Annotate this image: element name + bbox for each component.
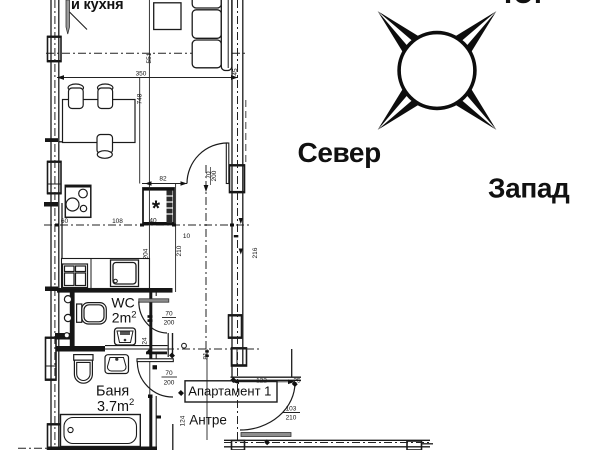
svg-text:Юг: Юг <box>504 0 546 10</box>
svg-text:Запад: Запад <box>488 173 570 204</box>
svg-text:204: 204 <box>143 248 150 259</box>
svg-text:70: 70 <box>165 311 173 318</box>
svg-text:Апартамент 1: Апартамент 1 <box>188 383 271 398</box>
svg-text:60: 60 <box>61 218 69 225</box>
svg-text:70: 70 <box>165 370 173 377</box>
svg-text:2m2: 2m2 <box>112 309 137 325</box>
svg-text:200: 200 <box>211 170 218 181</box>
svg-text:81: 81 <box>203 352 210 360</box>
svg-text:и кухня: и кухня <box>71 0 123 13</box>
svg-text:25: 25 <box>293 378 301 385</box>
svg-text:103: 103 <box>286 406 297 413</box>
svg-text:3.7m2: 3.7m2 <box>97 397 134 415</box>
svg-text:748: 748 <box>137 93 144 104</box>
svg-text:551: 551 <box>146 52 153 63</box>
svg-text:210: 210 <box>176 245 183 256</box>
svg-text:210: 210 <box>286 415 297 422</box>
svg-text:200: 200 <box>164 380 175 387</box>
svg-text:200: 200 <box>164 320 175 327</box>
svg-text:124: 124 <box>180 415 187 426</box>
svg-text:40: 40 <box>149 218 157 225</box>
svg-text:82: 82 <box>159 176 167 183</box>
svg-text:216: 216 <box>252 247 259 258</box>
svg-text:24: 24 <box>142 337 149 345</box>
svg-text:10: 10 <box>183 233 191 240</box>
svg-text:Баня: Баня <box>96 384 129 400</box>
svg-text:108: 108 <box>112 218 123 225</box>
svg-text:WC: WC <box>111 295 134 311</box>
svg-text:Север: Север <box>298 137 381 168</box>
svg-text:350: 350 <box>136 71 147 78</box>
svg-text:45: 45 <box>232 68 239 76</box>
svg-text:Антре: Антре <box>189 413 227 428</box>
